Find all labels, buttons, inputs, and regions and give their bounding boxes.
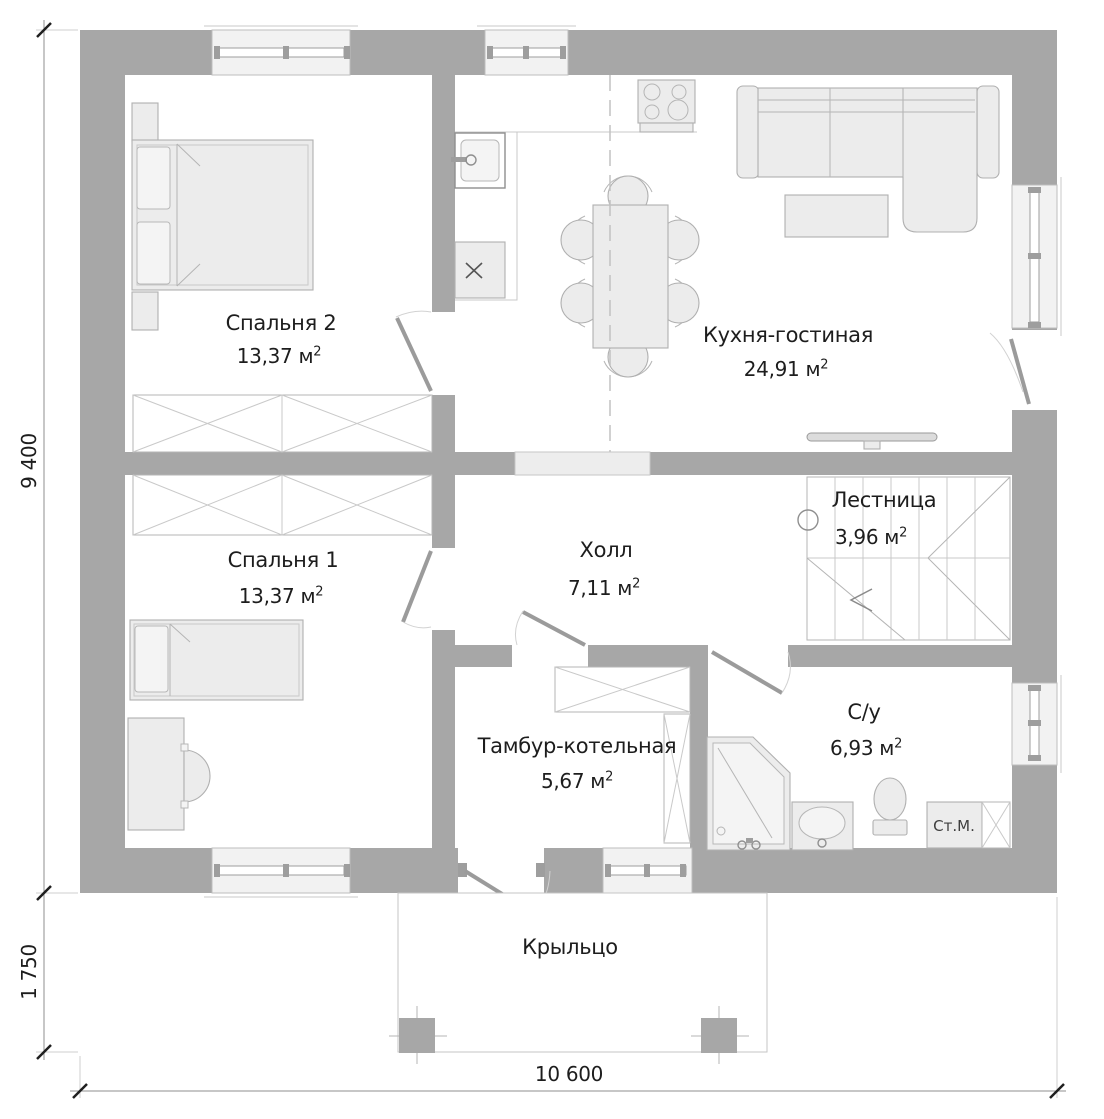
dimension-label-porch-height: 1 750 — [17, 944, 41, 1000]
room-area-stairs: 3,96м2 — [835, 525, 907, 549]
toilet — [873, 778, 907, 835]
room-area-bathroom: 6,93м2 — [830, 736, 902, 760]
room-name-bedroom2: Спальня 2 — [226, 311, 337, 335]
shower-cabin — [707, 737, 790, 850]
dimension-label-height: 9 400 — [17, 433, 41, 489]
room-area-bedroom1: 13,37м2 — [239, 584, 324, 608]
kitchen-cabinet-x — [455, 242, 505, 298]
kitchen-sink — [451, 133, 505, 188]
window-top-bedroom2 — [204, 26, 358, 75]
stair-direction-arrow — [851, 589, 872, 611]
room-name-stairs: Лестница — [832, 488, 937, 512]
coffee-table — [785, 195, 888, 237]
tambour-wardrobe — [555, 667, 690, 712]
window-bottom-tambour — [595, 848, 700, 897]
door-tambour — [515, 611, 585, 645]
dimension-left — [36, 20, 78, 1060]
room-area-tambour: 5,67м2 — [541, 769, 613, 793]
door-bedroom1 — [403, 551, 431, 628]
room-name-bathroom: С/у — [847, 700, 880, 724]
room-area-kitchen-living: 24,91м2 — [744, 357, 829, 381]
room-name-hall: Холл — [580, 538, 633, 562]
washing-machine-label: Ст.М. — [933, 817, 975, 835]
dining-table — [593, 205, 668, 348]
window-right-bathroom — [1012, 675, 1061, 773]
floor-plan: Спальня 2 13,37м2 Кухня-гостиная 24,91м2… — [0, 0, 1104, 1119]
wardrobe-bedroom2 — [133, 395, 432, 452]
single-bed — [130, 620, 303, 700]
room-area-bedroom2: 13,37м2 — [237, 344, 322, 368]
desk-chair — [181, 744, 210, 808]
room-name-kitchen-living: Кухня-гостиная — [703, 323, 873, 347]
room-name-bedroom1: Спальня 1 — [228, 548, 339, 572]
bathroom-cabinet-x — [982, 802, 1010, 848]
wall-opening — [515, 452, 650, 475]
stove — [638, 80, 695, 132]
bathroom-sink — [792, 802, 853, 850]
door-bathroom — [712, 652, 790, 693]
room-area-hall: 7,11м2 — [568, 576, 640, 600]
window-top-kitchen — [477, 26, 576, 75]
wardrobe-bedroom1 — [133, 475, 432, 535]
door-bedroom2 — [396, 311, 431, 391]
porch — [389, 893, 767, 1064]
desk — [128, 718, 184, 830]
door-balcony — [990, 330, 1057, 410]
dimension-label-width: 10 600 — [535, 1062, 603, 1086]
window-bottom-bedroom1 — [204, 848, 358, 897]
room-name-tambour: Тамбур-котельная — [478, 734, 677, 758]
window-right-living — [1012, 177, 1061, 336]
double-bed — [132, 140, 313, 290]
tv — [807, 433, 937, 449]
room-name-porch: Крыльцо — [522, 935, 618, 959]
